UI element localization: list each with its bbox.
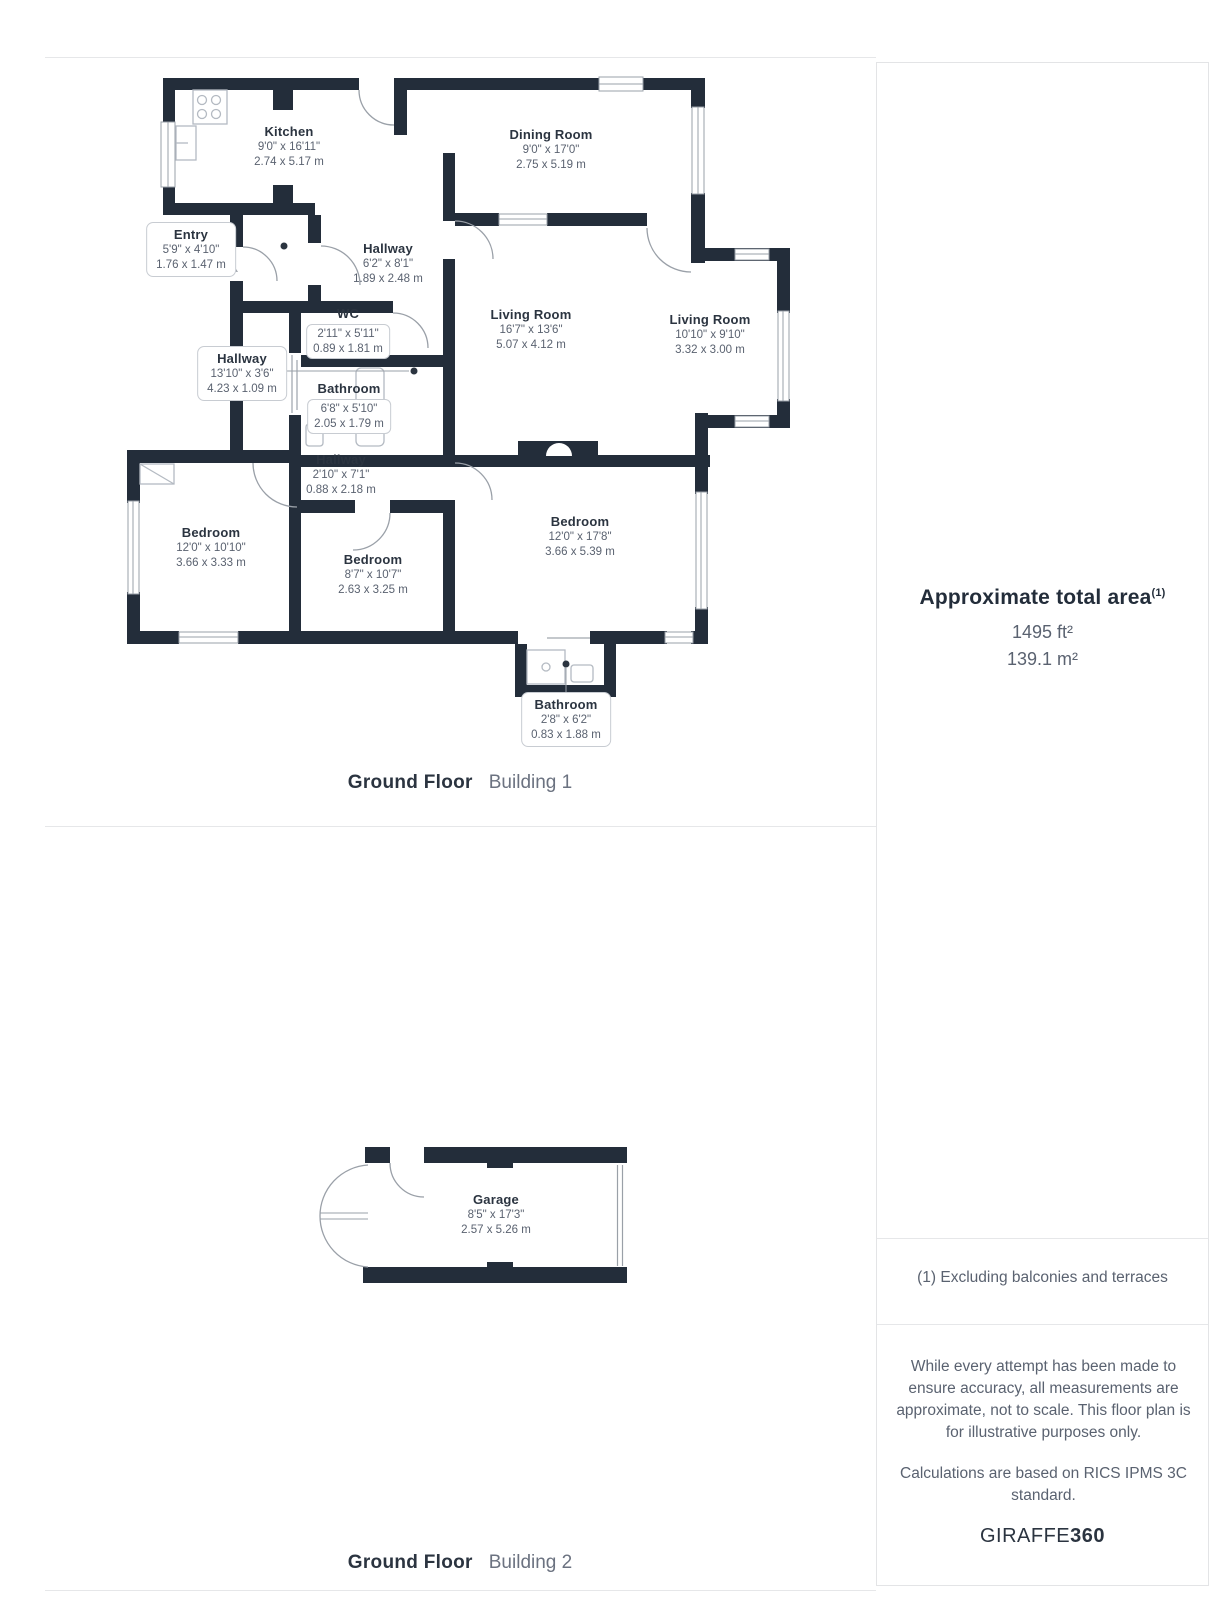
disclaimer-text: While every attempt has been made to ens… [893,1356,1194,1444]
room-label-dining-room: Dining Room 9'0" x 17'0" 2.75 x 5.19 m [509,127,592,172]
floorplan-building1-svg [110,65,810,755]
room-label-garage: Garage 8'5" x 17'3" 2.57 x 5.26 m [461,1192,531,1237]
footnote-marker: (1) [1151,587,1165,599]
sidebar-divider-2 [877,1324,1208,1325]
section1-top-border [45,57,876,58]
summary-sidebar: Approximate total area(1) 1495 ft² 139.1… [876,62,1209,1586]
room-label-bedroom-1: Bedroom 12'0" x 10'10" 3.66 x 3.33 m [176,525,246,570]
door-arcs-building2 [320,1163,424,1267]
garage-door [618,1165,623,1266]
room-label-bathroom-2: Bathroom 2'8" x 6'2" 0.83 x 1.88 m [521,692,611,747]
sidebar-divider-1 [877,1238,1208,1239]
total-area-title: Approximate total area(1) [877,586,1208,610]
bathroom-dims-box: 6'8" x 5'10" 2.05 x 1.79 m [307,399,391,435]
room-label-entry: Entry 5'9" x 4'10" 1.76 x 1.47 m [146,222,236,277]
room-label-hallway-3: Hallway 2'10" x 7'1" 0.88 x 2.18 m [306,452,376,497]
room-label-wc: WC 2'11" x 5'11" 0.89 x 1.81 m [306,306,390,359]
total-area-ft: 1495 ft² [877,622,1208,643]
calculation-standard-text: Calculations are based on RICS IPMS 3C s… [893,1463,1194,1507]
caption-building2: Ground FloorBuilding 2 [348,1552,572,1574]
room-label-living-room-1: Living Room 16'7" x 13'6" 5.07 x 4.12 m [491,307,572,352]
room-label-living-room-2: Living Room 10'10" x 9'10" 3.32 x 3.00 m [670,312,751,357]
room-label-bathroom-1: Bathroom 6'8" x 5'10" 2.05 x 1.79 m [307,381,391,434]
caption-building1: Ground FloorBuilding 1 [348,772,572,794]
room-label-hallway-2: Hallway 13'10" x 3'6" 4.23 x 1.09 m [197,346,287,401]
footnote-text: (1) Excluding balconies and terraces [877,1269,1208,1287]
section2-bottom-border [45,1590,876,1591]
room-label-bedroom-2: Bedroom 8'7" x 10'7" 2.63 x 3.25 m [338,552,408,597]
room-label-hallway-1: Hallway 6'2" x 8'1" 1.89 x 2.48 m [353,241,423,286]
room-label-bedroom-3: Bedroom 12'0" x 17'8" 3.66 x 5.39 m [545,514,615,559]
giraffe360-logo: GIRAFFE360 [877,1525,1208,1548]
total-area-block: Approximate total area(1) 1495 ft² 139.1… [877,586,1208,670]
section1-bottom-border [45,826,876,827]
room-label-kitchen: Kitchen 9'0" x 16'11" 2.74 x 5.17 m [254,124,324,169]
wc-dims-box: 2'11" x 5'11" 0.89 x 1.81 m [306,324,390,360]
total-area-m: 139.1 m² [877,649,1208,670]
